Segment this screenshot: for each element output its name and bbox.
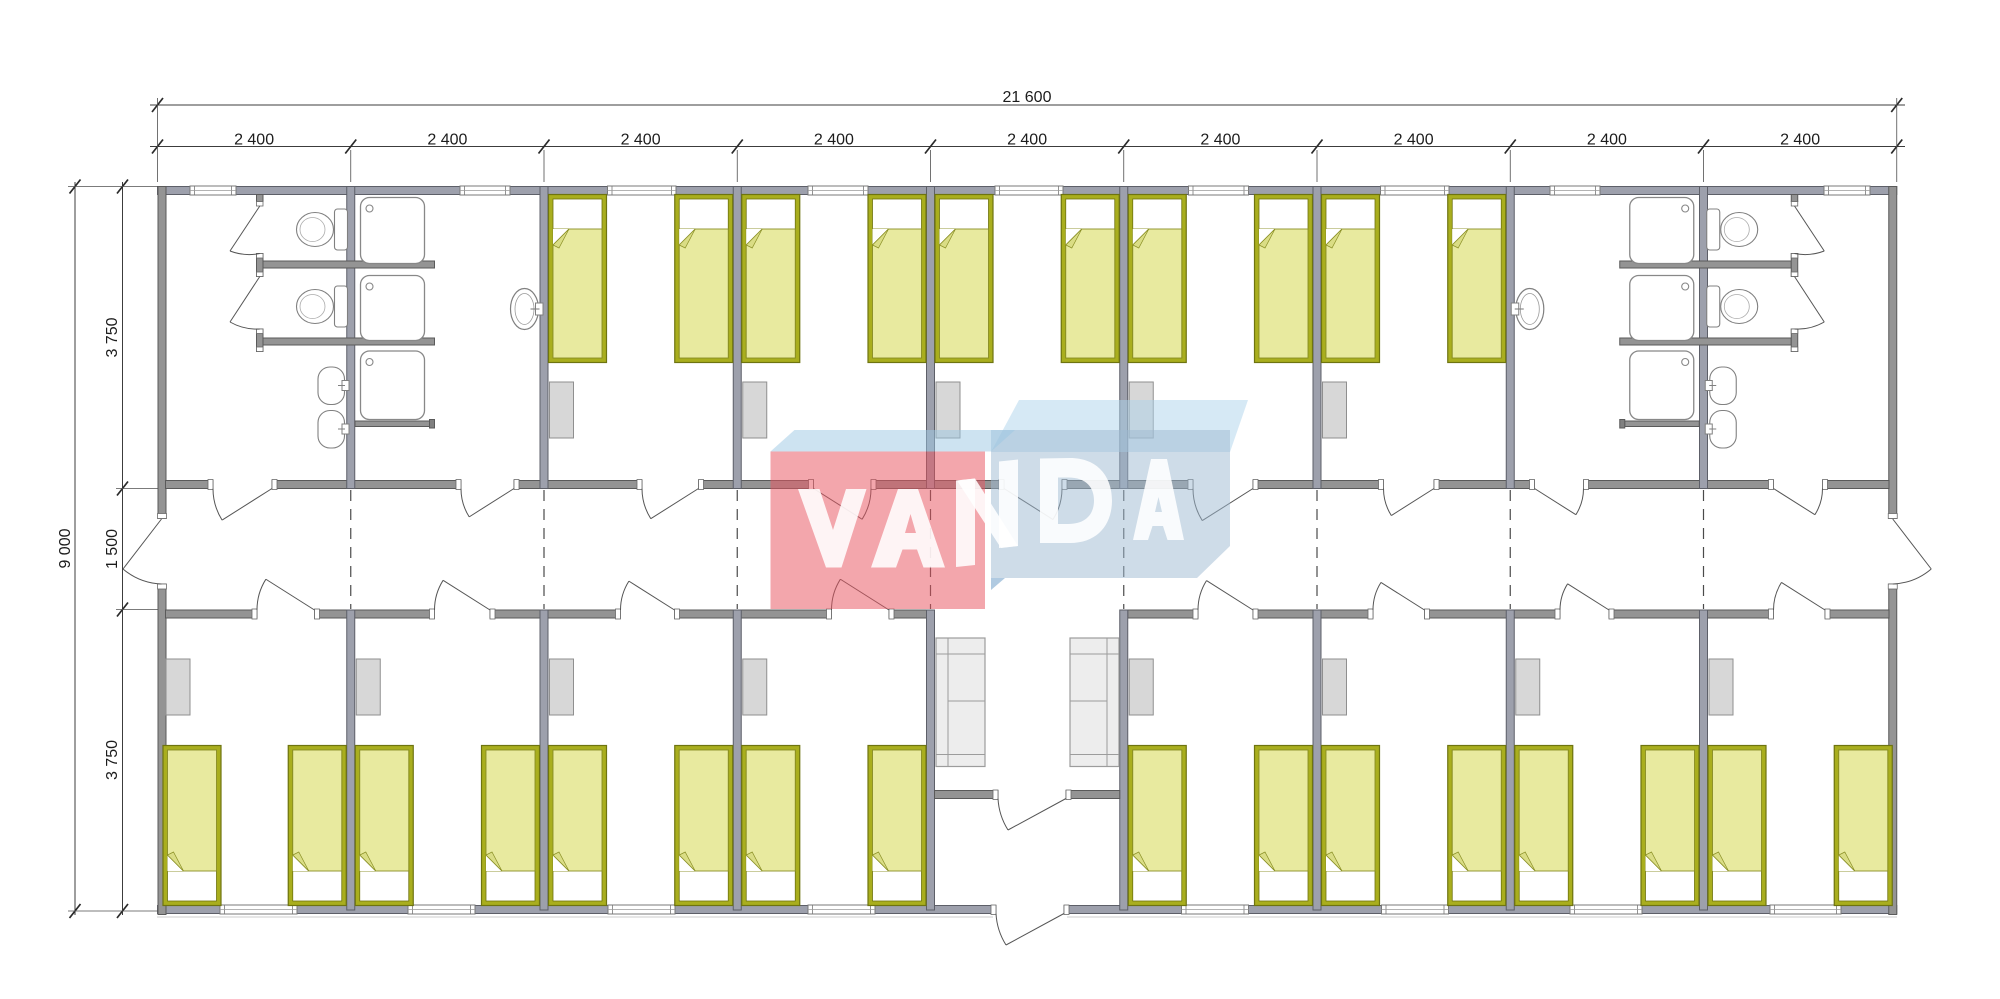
svg-text:3 750: 3 750 <box>104 317 121 357</box>
svg-text:2 400: 2 400 <box>1587 132 1627 149</box>
svg-text:3 750: 3 750 <box>104 740 121 780</box>
svg-text:2 400: 2 400 <box>234 132 274 149</box>
svg-text:2 400: 2 400 <box>621 132 661 149</box>
svg-text:9 000: 9 000 <box>57 528 74 568</box>
svg-text:21 600: 21 600 <box>1003 89 1052 106</box>
svg-text:2 400: 2 400 <box>1007 132 1047 149</box>
svg-text:2 400: 2 400 <box>427 132 467 149</box>
svg-text:2 400: 2 400 <box>814 132 854 149</box>
svg-text:2 400: 2 400 <box>1780 132 1820 149</box>
svg-text:2 400: 2 400 <box>1200 132 1240 149</box>
svg-text:1 500: 1 500 <box>104 529 121 569</box>
svg-text:2 400: 2 400 <box>1394 132 1434 149</box>
